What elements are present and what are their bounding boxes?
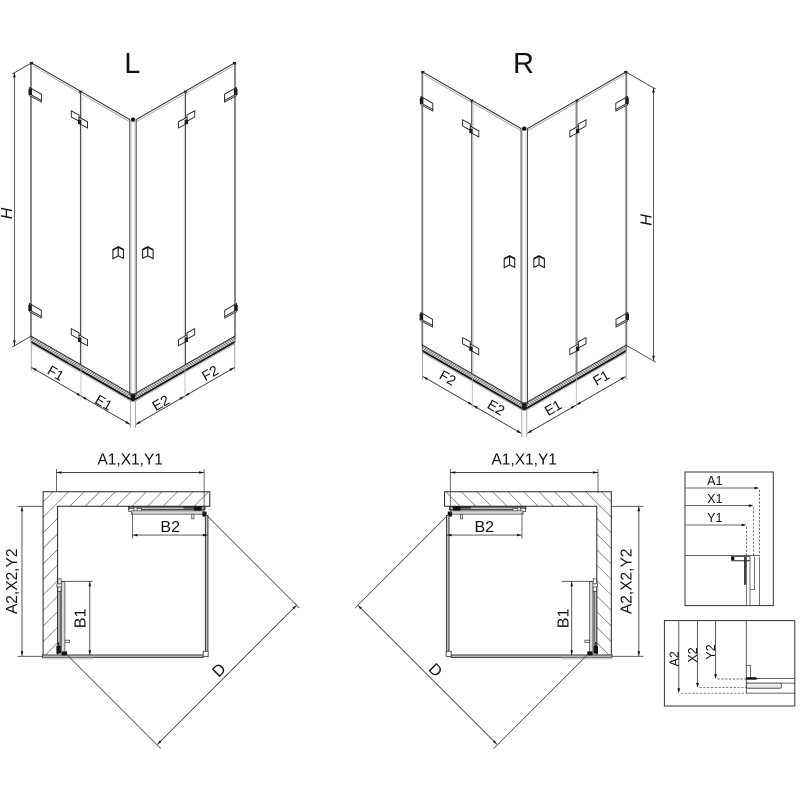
svg-text:B2: B2	[475, 519, 495, 536]
svg-text:A1: A1	[707, 474, 722, 488]
svg-text:B1: B1	[72, 608, 89, 628]
svg-text:A1,X1,Y1: A1,X1,Y1	[97, 451, 163, 468]
svg-text:A2: A2	[667, 651, 681, 666]
svg-text:A2,X2,Y2: A2,X2,Y2	[619, 549, 636, 615]
svg-text:A2,X2,Y2: A2,X2,Y2	[4, 549, 21, 615]
svg-text:X1: X1	[707, 492, 722, 506]
svg-text:H: H	[0, 207, 16, 219]
svg-text:L: L	[124, 48, 140, 80]
svg-text:H: H	[639, 214, 656, 226]
svg-text:R: R	[513, 48, 534, 80]
svg-text:B2: B2	[160, 519, 180, 536]
svg-text:X2: X2	[686, 647, 700, 662]
svg-text:A1,X1,Y1: A1,X1,Y1	[491, 451, 557, 468]
svg-text:Y2: Y2	[704, 644, 718, 659]
svg-text:Y1: Y1	[707, 511, 722, 525]
svg-text:B1: B1	[556, 608, 573, 628]
